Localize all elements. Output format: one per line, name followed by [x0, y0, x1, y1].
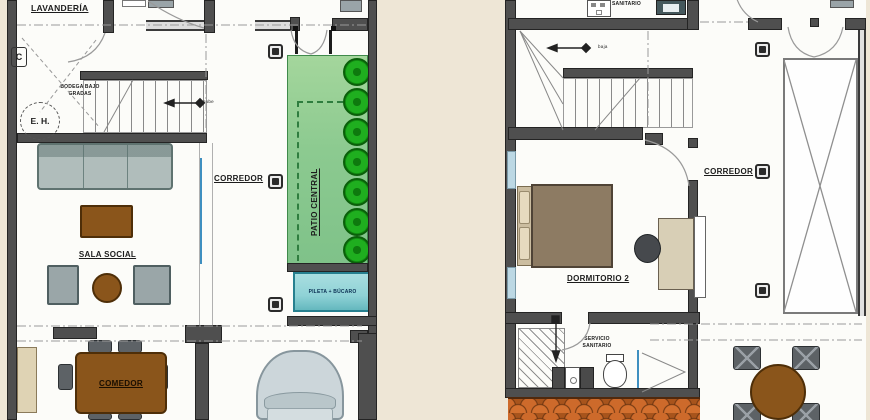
margin	[866, 0, 870, 420]
pillow	[519, 191, 530, 224]
floor-plan-image: PATIO CENTRAL PILETA + BÚCARO	[0, 0, 870, 420]
corridor-line	[212, 143, 213, 333]
pileta-label: PILETA + BÚCARO	[309, 289, 357, 295]
desk-chair	[634, 234, 661, 263]
sofa	[37, 143, 173, 190]
bed	[531, 184, 613, 268]
terrace-table	[750, 364, 806, 420]
sube-label: sube	[203, 99, 214, 104]
sanitario-top-label: SANITARIO	[612, 1, 641, 7]
corredor-label: CORREDOR	[704, 167, 753, 176]
wall	[358, 333, 377, 420]
roof-tiles	[507, 397, 700, 420]
car-roof	[267, 408, 333, 420]
car-windshield	[264, 392, 336, 409]
terrace-chair	[733, 346, 761, 370]
tree-icon	[343, 178, 371, 206]
void-over-patio	[783, 58, 858, 314]
cabinet	[830, 0, 854, 8]
wall	[688, 138, 698, 148]
margin	[505, 398, 508, 420]
armchair	[47, 265, 79, 305]
door-leaf	[329, 30, 332, 54]
comedor-label: COMEDOR	[99, 379, 143, 388]
eh-label: E. H.	[31, 116, 50, 126]
bodega-label-2: GRADAS	[50, 91, 110, 97]
shower-tray	[663, 4, 679, 12]
window	[507, 267, 516, 299]
toilet	[603, 360, 627, 388]
armchair	[133, 265, 171, 305]
wall	[845, 18, 866, 30]
lavanderia-label: LAVANDERÍA	[31, 3, 88, 13]
car	[256, 350, 344, 420]
fixture-mark	[591, 3, 596, 7]
wall	[505, 0, 516, 398]
wall	[53, 327, 97, 339]
cabinet	[340, 0, 362, 12]
servicio-label-2: SANITARIO	[573, 343, 621, 349]
sala-social-label: SALA SOCIAL	[70, 250, 145, 259]
window	[146, 20, 204, 31]
bath-fixture	[587, 0, 611, 17]
tree-icon	[343, 58, 371, 86]
margin	[0, 0, 7, 420]
stair-handrail	[563, 68, 693, 78]
dining-chair	[118, 413, 142, 420]
wall	[687, 0, 699, 30]
wall	[287, 316, 377, 326]
fixture-mark	[596, 10, 602, 15]
eh-marker: E. H.	[20, 102, 60, 140]
door-leaf	[295, 30, 298, 54]
fixture-mark	[600, 3, 605, 7]
plan-gap	[377, 0, 505, 420]
servicio-label-1: SERVICIO	[573, 336, 621, 342]
wall	[748, 18, 782, 30]
tree-icon	[343, 88, 371, 116]
pileta-area: PILETA + BÚCARO	[293, 272, 372, 312]
buffet-cabinet	[17, 347, 37, 413]
closet-marker: C	[11, 47, 27, 67]
corredor-label: CORREDOR	[214, 174, 263, 183]
dining-chair	[88, 413, 112, 420]
wall	[810, 18, 819, 27]
tree-icon	[343, 236, 371, 264]
left-plan-floor: PATIO CENTRAL PILETA + BÚCARO	[7, 0, 377, 420]
column	[268, 297, 283, 312]
terrace-chair	[792, 346, 820, 370]
glass-partition	[200, 158, 202, 264]
closet-letter: C	[16, 52, 23, 62]
window	[507, 151, 516, 189]
wall	[103, 0, 114, 33]
door-hinge	[293, 26, 298, 31]
wall	[645, 133, 663, 145]
window-wall	[858, 28, 866, 316]
right-plan-floor: SANITARIO baja DORMITORIO 2 CORREDOR	[505, 0, 866, 420]
column	[755, 164, 770, 179]
wall	[332, 18, 368, 31]
wall	[508, 18, 693, 30]
side-table	[92, 273, 122, 303]
shower-top	[656, 0, 686, 15]
column	[268, 44, 283, 59]
column	[755, 283, 770, 298]
wall	[508, 127, 643, 140]
staircase	[563, 78, 693, 128]
visitas-label: S.S. VISITAS	[138, 0, 183, 2]
dormitorio-2-label: DORMITORIO 2	[567, 274, 629, 283]
door-hinge	[331, 26, 336, 31]
patio-central-label: PATIO CENTRAL	[310, 114, 319, 236]
stair-handrail	[80, 71, 208, 80]
wall	[505, 312, 562, 324]
bodega-label-1: BODEGA BAJO	[50, 84, 110, 90]
sink-drain	[570, 377, 577, 384]
wall	[588, 312, 700, 324]
wall	[195, 343, 209, 420]
door-leaf	[694, 216, 706, 298]
column	[268, 174, 283, 189]
tree-icon	[343, 208, 371, 236]
column	[755, 42, 770, 57]
window	[255, 20, 293, 31]
wall	[287, 263, 368, 272]
dining-chair	[58, 364, 73, 390]
tree-icon	[343, 148, 371, 176]
wall	[185, 325, 222, 343]
coffee-table	[80, 205, 133, 238]
baja-label: baja	[598, 44, 608, 49]
pillow	[519, 227, 530, 260]
wall	[204, 0, 215, 33]
desk	[658, 218, 694, 290]
tree-icon	[343, 118, 371, 146]
dining-table: COMEDOR	[75, 352, 167, 414]
